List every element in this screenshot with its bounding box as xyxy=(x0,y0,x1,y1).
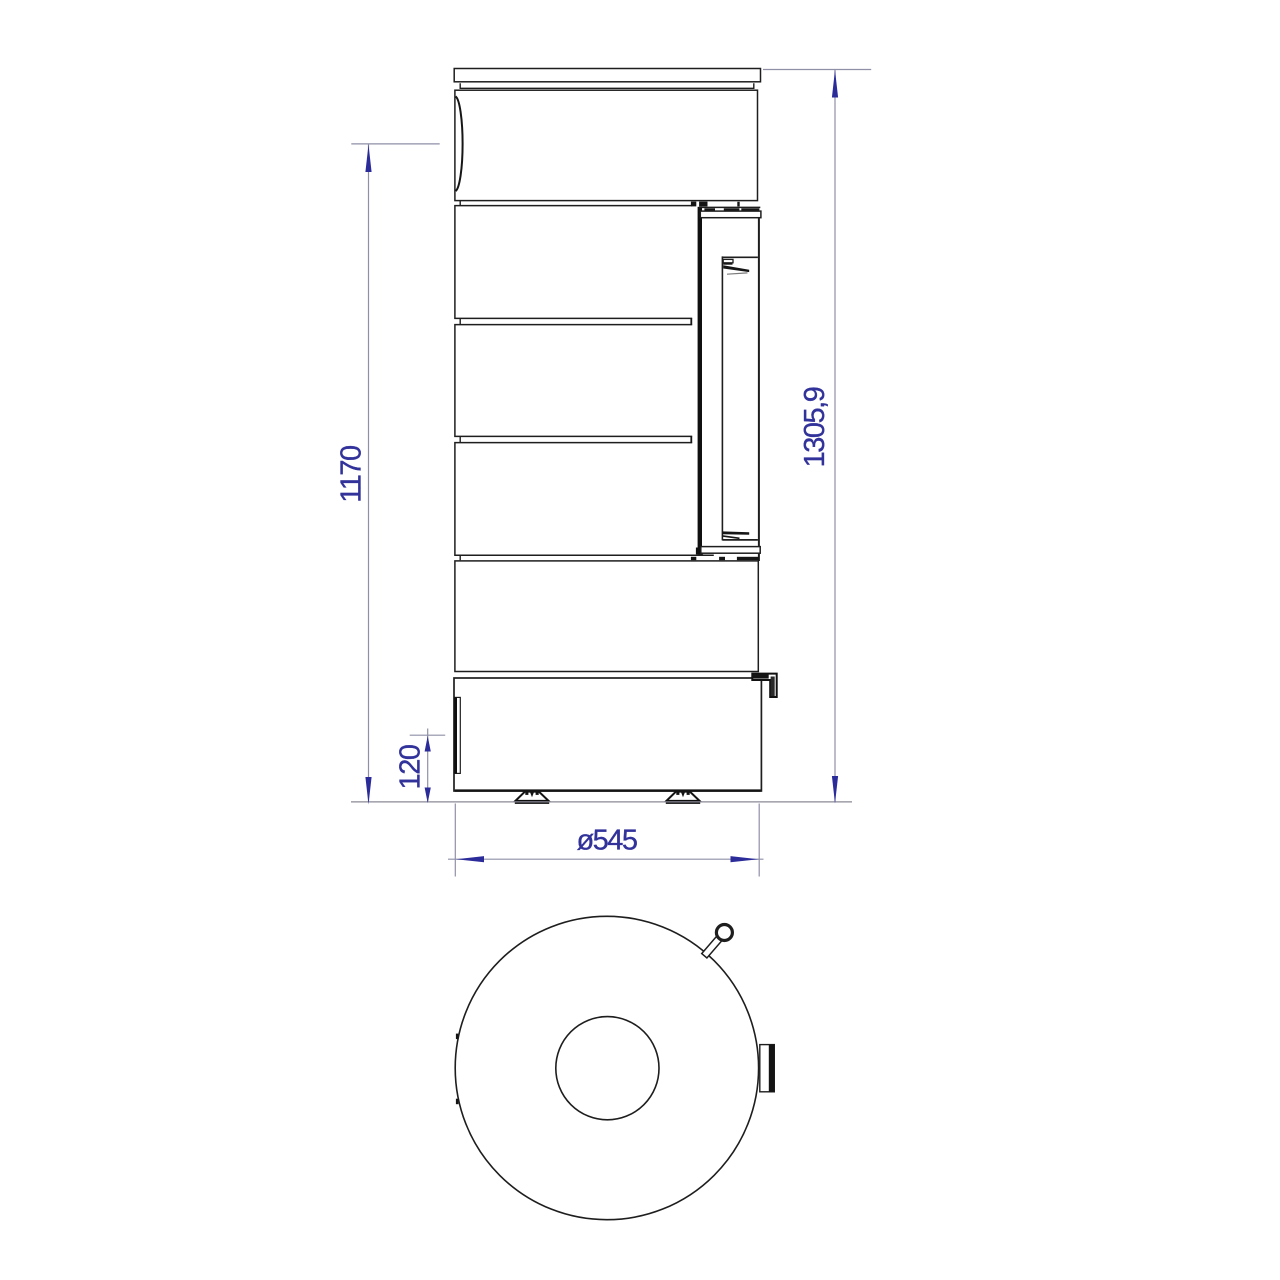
svg-text:1170: 1170 xyxy=(336,446,368,503)
svg-text:120: 120 xyxy=(395,745,427,789)
svg-text:1305,9: 1305,9 xyxy=(799,387,831,467)
svg-text:ø545: ø545 xyxy=(576,825,636,857)
